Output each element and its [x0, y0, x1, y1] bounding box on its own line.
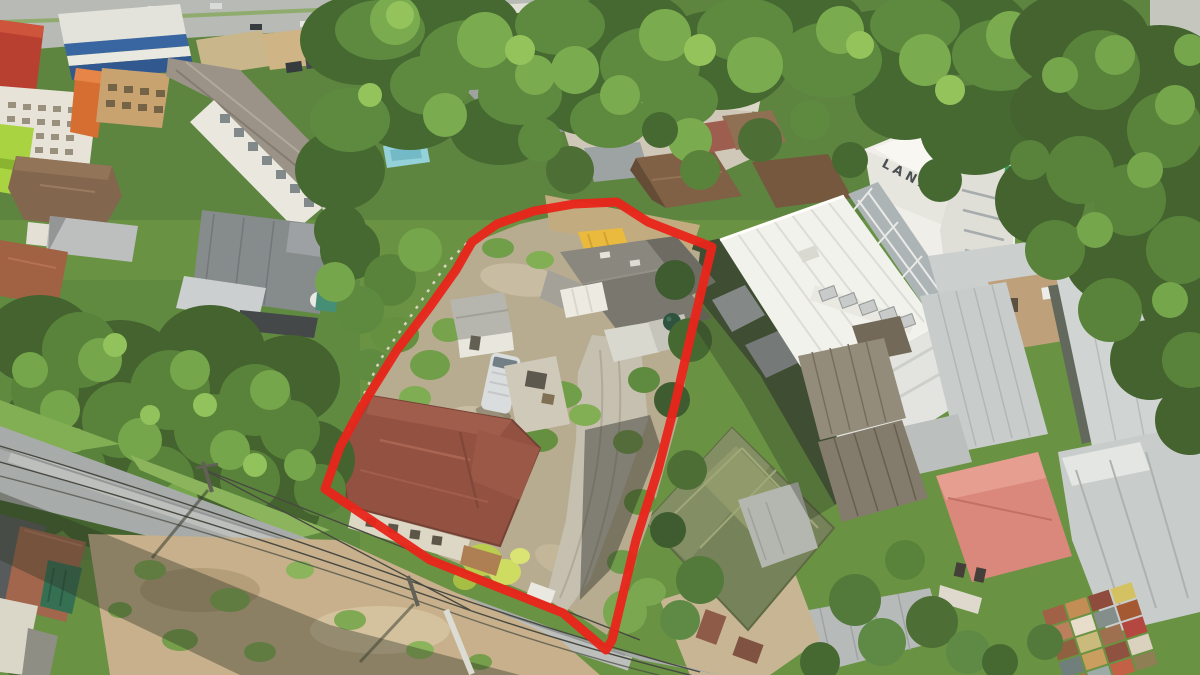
sunlight-tint	[0, 0, 1200, 675]
aerial-photo: LANA	[0, 0, 1200, 675]
